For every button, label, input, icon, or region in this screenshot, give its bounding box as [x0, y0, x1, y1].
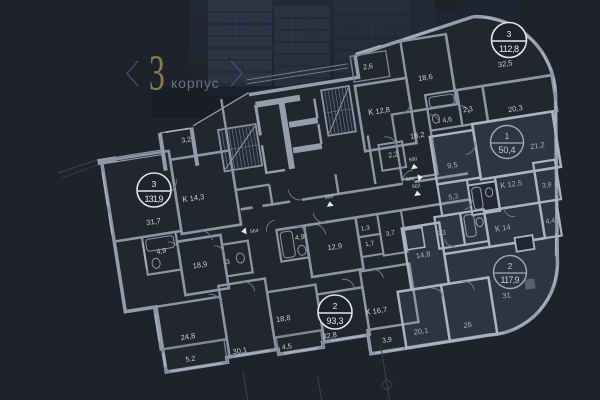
svg-text:1,7: 1,7 [365, 240, 375, 248]
svg-text:26: 26 [463, 320, 473, 330]
svg-text:31: 31 [502, 290, 512, 300]
svg-text:2: 2 [333, 301, 338, 311]
svg-text:112,8: 112,8 [499, 44, 519, 54]
svg-text:50,4: 50,4 [499, 145, 516, 155]
svg-text:корпус: корпус [171, 75, 220, 91]
svg-text:2: 2 [508, 262, 513, 271]
svg-text:117,9: 117,9 [501, 275, 520, 285]
svg-text:3: 3 [507, 29, 512, 39]
svg-text:3: 3 [149, 46, 165, 102]
svg-text:1: 1 [505, 132, 510, 141]
svg-text:3: 3 [152, 179, 157, 189]
svg-text:9,5: 9,5 [447, 160, 459, 171]
svg-text:1,3: 1,3 [360, 224, 370, 232]
svg-text:3,7: 3,7 [385, 230, 395, 238]
svg-text:93,3: 93,3 [327, 316, 344, 326]
svg-text:131,9: 131,9 [145, 194, 164, 204]
